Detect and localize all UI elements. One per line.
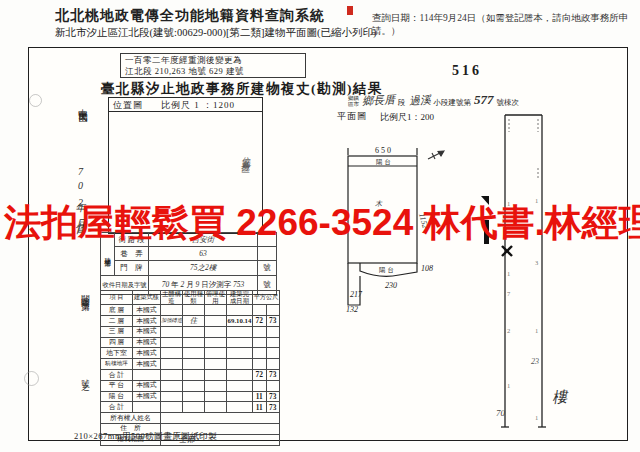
- door-suffix: 號: [258, 261, 277, 276]
- red-watermark-text: 法拍屋輕鬆買 2266-3524 林代書.林經理: [4, 198, 640, 248]
- door-value-hw: 75之2樓: [149, 261, 258, 276]
- dim-230: 230: [385, 281, 397, 290]
- district-prefix: 鄉鎮 區市: [348, 96, 359, 108]
- row-label: 底 層: [101, 305, 133, 316]
- duan-label: 段: [398, 98, 406, 108]
- table-row: 所有權人姓名: [101, 413, 280, 424]
- svg-text:7: 7: [507, 290, 511, 297]
- xiaoduan-mid-label: 小段建號第: [434, 98, 472, 108]
- district-prefix-bottom: 區市: [348, 102, 359, 108]
- receipt-month-hw: 2: [181, 280, 185, 289]
- row-style: 本國式: [133, 305, 161, 316]
- col-manage: 管理使用: [205, 291, 227, 305]
- table-row: 二 層 本國式 加強磚造 住 69.10.14 72 73: [101, 316, 280, 327]
- owner-name-label: 所有權人姓名: [101, 413, 161, 424]
- table-row: 合 計 11 73: [101, 402, 280, 413]
- era-label: 中華民國: [76, 101, 89, 109]
- receipt-number-hw: 753: [233, 280, 244, 289]
- svg-text:3: 3: [535, 259, 538, 266]
- row-style: 本國式: [133, 337, 161, 348]
- col-style: 建築式樣: [133, 291, 161, 305]
- building-suffix-label: 號棟次: [497, 98, 520, 108]
- strip-corner-dashes: [509, 119, 538, 180]
- table-row: 陽 台 本國式 11 73: [101, 391, 280, 402]
- row-label: 四 層: [101, 337, 133, 348]
- col-structure: 主體構造: [161, 291, 183, 305]
- receipt-year-hw: 70: [162, 280, 170, 289]
- row-style: 本國式: [133, 380, 161, 391]
- dim-108: 108: [421, 264, 433, 273]
- remeasure-stamp-line2: 江北段 210,263 地號 629 建號: [125, 66, 301, 77]
- row-area-dec: 73: [266, 402, 280, 413]
- hw-70: 70: [496, 408, 506, 418]
- row-style: 本國式: [133, 391, 161, 402]
- row-label: 合 計: [101, 370, 133, 381]
- table-row: 三 層 本國式: [101, 326, 280, 337]
- lane-value-hw: 63: [149, 247, 258, 261]
- row-label: 騎樓地坪: [101, 359, 133, 370]
- paper-spec-note: 210×267mm用500磅圖畫原圖紙印製: [74, 431, 217, 443]
- row-use-hw: 住: [183, 316, 205, 327]
- row-area-dec: 73: [266, 391, 280, 402]
- table-row: 四 層 本國式: [101, 337, 280, 348]
- red-seal-mark: [347, 6, 353, 15]
- row-label: 陽 台: [101, 391, 133, 402]
- balcony-top-label: 陽台: [376, 158, 393, 166]
- faint-stamp-circle: [29, 94, 42, 107]
- lane-label: 巷 弄: [115, 247, 149, 261]
- svg-text:1: 1: [507, 382, 510, 389]
- survey-table: 項 目 建築式樣 主體構造 使用種類 管理使用 建築完成日期 平方公尺 底 層 …: [100, 290, 280, 446]
- floor-plan-label: 平面圖: [337, 110, 367, 123]
- row-area-dec: 73: [266, 316, 280, 327]
- table-header-row: 項 目 建築式樣 主體構造 使用種類 管理使用 建築完成日期 平方公尺: [101, 291, 280, 305]
- col-use-type: 使用種類: [183, 291, 205, 305]
- hw-23: 23: [531, 357, 539, 366]
- survey-block: 項 目 建築式樣 主體構造 使用種類 管理使用 建築完成日期 平方公尺 底 層 …: [100, 290, 280, 446]
- row-label: 地下室: [101, 348, 133, 359]
- system-title: 北北桃地政電傳全功能地籍資料查詢系統: [55, 7, 325, 25]
- location-map-label: 位置圖: [113, 99, 143, 112]
- location-map-scale: 比例尺 1 ：1200: [161, 99, 235, 112]
- faint-stamp-circle: [24, 371, 39, 386]
- row-area-int: 11: [253, 402, 267, 413]
- row-area-int: 72: [253, 316, 267, 327]
- document-title: 臺北縣汐止地政事務所建物複丈(勘測)結果: [101, 80, 383, 98]
- svg-text:1: 1: [535, 414, 538, 421]
- table-row: 地下室 本國式: [101, 348, 280, 359]
- table-row: 巷 弄 63: [101, 247, 277, 261]
- ledger-label: 閱繪圖簿第: [80, 288, 92, 298]
- row-style: 本國式: [133, 359, 161, 370]
- dim-132: 132: [346, 305, 358, 312]
- row-style: 本國式: [133, 348, 161, 359]
- table-row: 騎樓地坪 本國式: [101, 359, 280, 370]
- query-date-note: 查詢日期：114年9月24日（如需登記謄本，請向地政事務所申請。）: [372, 12, 640, 38]
- receipt-year-unit: 年: [171, 280, 179, 289]
- owner-name-value: [161, 413, 280, 424]
- row-area-dec: 73: [266, 370, 280, 381]
- table-row: 合 計 72 73: [101, 370, 280, 381]
- document-viewer-page: 北北桃地政電傳全功能地籍資料查詢系統 查詢日期：114年9月24日（如需登記謄本…: [0, 0, 640, 452]
- north-arrow-icon: [428, 151, 444, 159]
- remeasure-stamp-line1: 一百零二年度經重測後變更為: [125, 55, 301, 66]
- door-label: 門 牌: [115, 261, 149, 276]
- document-subtitle: 新北市汐止區江北段(建號:00629-000)[第二類]建物平面圖(已縮小列印): [55, 26, 376, 40]
- row-area-int: 72: [253, 370, 267, 381]
- receipt-day-hw: 9: [196, 280, 200, 289]
- dim-217: 217: [350, 290, 363, 299]
- col-complete-date: 建築完成日期: [227, 291, 253, 305]
- location-map-header: 位置圖 比例尺 1 ：1200: [109, 98, 262, 112]
- dim-650: 650: [375, 146, 393, 155]
- location-map-note-hw: 位置如分區: [240, 150, 252, 160]
- township-hw: 鄉長厝: [362, 92, 396, 109]
- ledger-suffix: 號之: [80, 372, 92, 378]
- row-label: 二 層: [101, 316, 133, 327]
- balcony-bottom-label: 陽台: [379, 266, 396, 274]
- row-style: 本國式: [133, 326, 161, 337]
- row-area-int: 11: [253, 391, 267, 402]
- row-style: 本國式: [133, 316, 161, 327]
- lane-suffix: [258, 247, 277, 261]
- svg-text:2: 2: [507, 327, 510, 334]
- row-label: 合 計: [101, 402, 133, 413]
- table-row: 平 台 本國式: [101, 380, 280, 391]
- receipt-month-unit: 月: [186, 280, 194, 289]
- floor-plan-scale: 比例尺1：200: [380, 111, 434, 124]
- row-label: 三 層: [101, 326, 133, 337]
- svg-text:1: 1: [507, 270, 510, 277]
- floor-word-hw: 樓: [551, 387, 568, 407]
- page-number: 516: [452, 63, 482, 79]
- col-area: 平方公尺: [253, 291, 280, 305]
- remeasure-stamp-box: 一百零二年度經重測後變更為 江北段 210,263 地號 629 建號: [120, 53, 306, 78]
- table-row: 門 牌 75之2樓 號: [101, 261, 277, 276]
- xiaoduan-hw: 過溪: [408, 92, 431, 108]
- svg-text:1: 1: [535, 327, 538, 334]
- col-item: 項 目: [101, 291, 133, 305]
- site-strip-sketch: 1 1 7 2 1 1 3 1 1 23 70: [495, 108, 553, 436]
- building-id-line: 鄉鎮 區市 鄉長厝 段 過溪 小段建號第 577 號棟次: [348, 92, 519, 108]
- table-row: 底 層 本國式: [101, 305, 280, 316]
- building-number-hw: 577: [474, 92, 494, 108]
- row-label: 平 台: [101, 380, 133, 391]
- receipt-day-unit: 日汐測字: [201, 280, 231, 289]
- row-complete-date: 69.10.14: [227, 316, 253, 327]
- row-structure-hw: 加強磚造: [161, 316, 183, 327]
